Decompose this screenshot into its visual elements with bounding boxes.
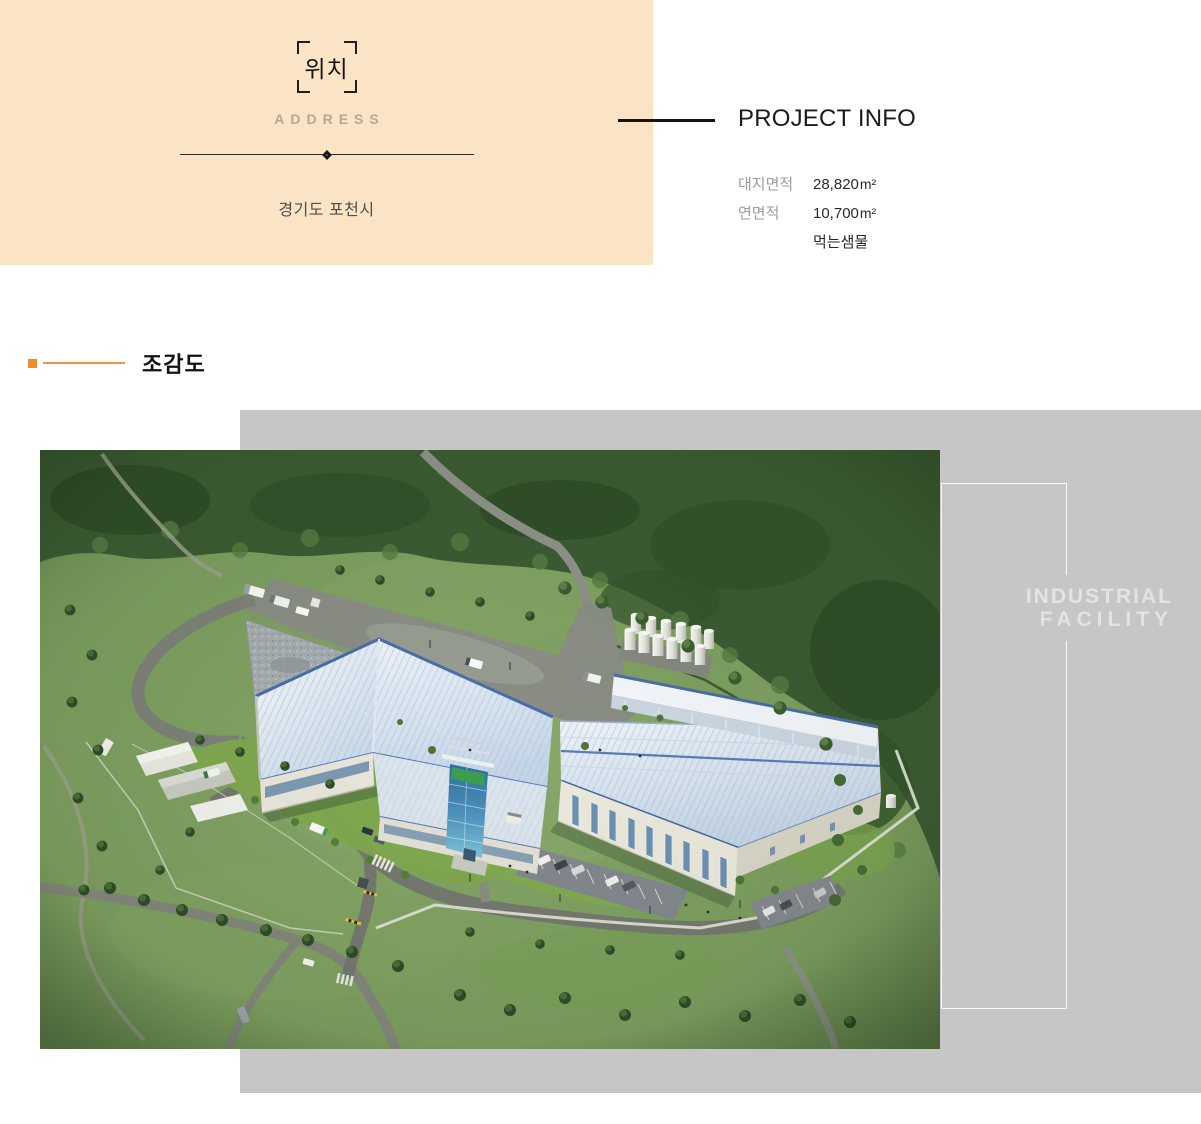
row-value: 28,820m² [813, 170, 876, 199]
row-value: 먹는샘물 [813, 228, 869, 257]
bracket-corner-icon [344, 41, 357, 54]
address-title: 위치 [304, 50, 348, 84]
address-title-frame: 위치 [297, 41, 357, 93]
project-info-accent-line [618, 119, 715, 122]
section-title: 조감도 [142, 347, 206, 379]
industrial-facility-label: INDUSTRIAL FACILITY [1010, 575, 1173, 641]
facility-aerial-rendering [40, 450, 940, 1049]
table-row: 연면적 10,700m² [738, 199, 916, 228]
overlay-line1: INDUSTRIAL [1026, 585, 1173, 608]
row-value: 10,700m² [813, 199, 876, 228]
diamond-ornament-icon [322, 150, 332, 160]
page: 위치 ADDRESS 경기도 포천시 PROJECT INFO 대지면적 28,… [0, 0, 1201, 1124]
bracket-corner-icon [344, 80, 357, 93]
table-row: 먹는샘물 [738, 228, 916, 257]
address-card: 위치 ADDRESS 경기도 포천시 [0, 0, 653, 265]
row-unit: m² [860, 176, 876, 192]
bracket-corner-icon [297, 41, 310, 54]
row-label: 연면적 [738, 199, 813, 228]
table-row: 대지면적 28,820m² [738, 170, 916, 199]
project-info-title: PROJECT INFO [738, 104, 916, 134]
row-label: 대지면적 [738, 170, 813, 199]
bracket-corner-icon [297, 80, 310, 93]
row-label [738, 228, 813, 257]
project-info: PROJECT INFO 대지면적 28,820m² 연면적 10,700m² … [618, 104, 916, 257]
address-divider [180, 154, 474, 155]
aerial-rendering-image [40, 450, 940, 1049]
address-subtitle: ADDRESS [268, 111, 384, 127]
section-bullet-icon [28, 359, 37, 368]
section-accent-line [43, 362, 125, 364]
birdview-section-header: 조감도 [28, 350, 206, 376]
project-info-table: 대지면적 28,820m² 연면적 10,700m² 먹는샘물 [738, 170, 916, 257]
row-unit: m² [860, 205, 876, 221]
address-location: 경기도 포천시 [278, 196, 374, 220]
decorative-outline-box [941, 483, 1067, 1009]
overlay-line2: FACILITY [1026, 608, 1173, 631]
